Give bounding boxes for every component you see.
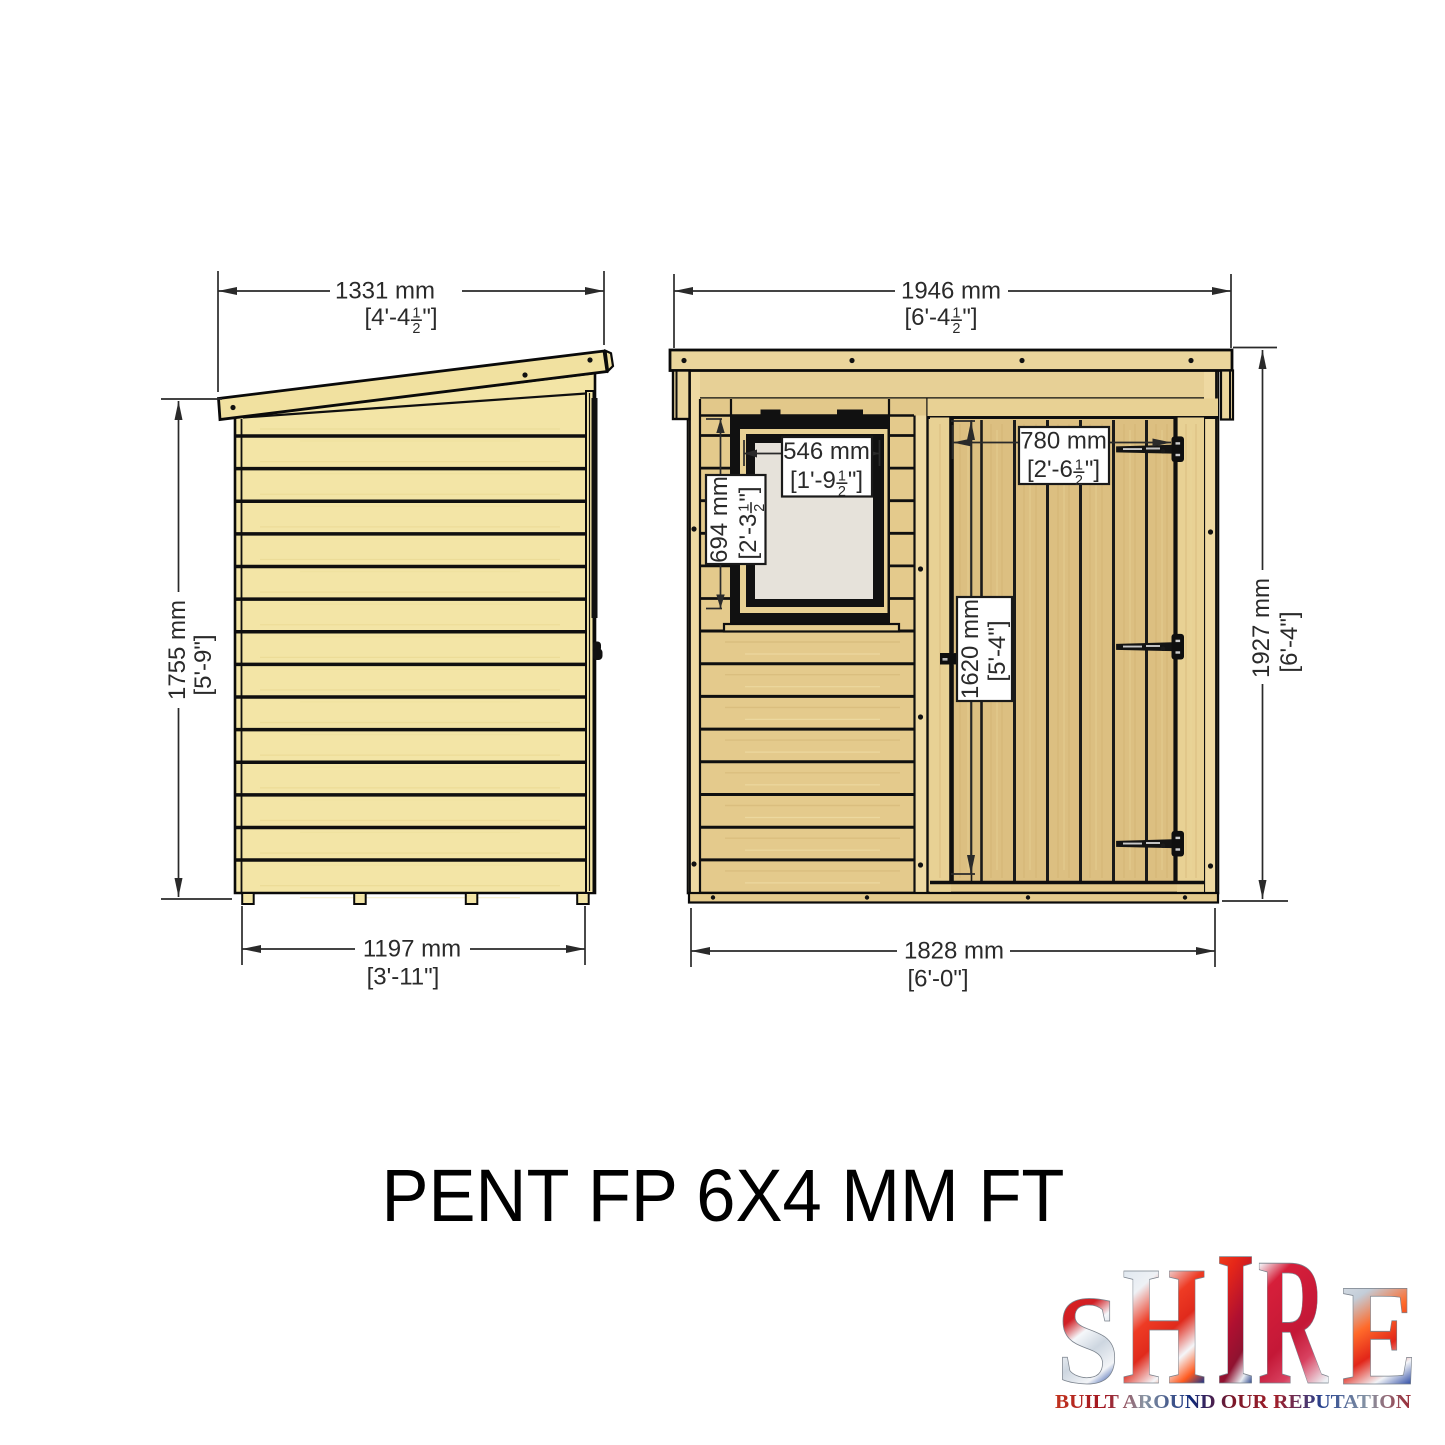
- svg-text:[3'-11"]: [3'-11"]: [367, 964, 440, 991]
- svg-text:1: 1: [737, 504, 753, 512]
- svg-text:"]: "]: [848, 467, 863, 494]
- svg-text:780 mm: 780 mm: [1020, 428, 1107, 455]
- svg-text:PENT FP 6X4 MM FT: PENT FP 6X4 MM FT: [382, 1154, 1065, 1237]
- svg-text:"]: "]: [1085, 456, 1100, 483]
- svg-text:2: 2: [412, 321, 420, 337]
- svg-text:S: S: [1057, 1271, 1120, 1411]
- svg-text:1197 mm: 1197 mm: [363, 936, 461, 963]
- svg-text:1828 mm: 1828 mm: [904, 938, 1004, 965]
- svg-text:[2'-6: [2'-6: [1027, 456, 1073, 483]
- svg-text:546 mm: 546 mm: [783, 438, 870, 465]
- svg-text:1: 1: [412, 306, 420, 322]
- svg-text:1755 mm: 1755 mm: [164, 600, 191, 700]
- svg-text:[5'-4"]: [5'-4"]: [984, 620, 1011, 681]
- svg-text:[6'-4: [6'-4: [904, 304, 950, 331]
- svg-text:1: 1: [952, 306, 960, 322]
- svg-text:"]: "]: [962, 304, 977, 331]
- svg-text:BUILT AROUND OUR REPUTATION: BUILT AROUND OUR REPUTATION: [1055, 1392, 1411, 1413]
- svg-text:[4'-4: [4'-4: [364, 304, 410, 331]
- svg-text:"]: "]: [422, 304, 437, 331]
- svg-text:2: 2: [952, 321, 960, 337]
- svg-text:1331 mm: 1331 mm: [335, 278, 435, 305]
- svg-text:[5'-9"]: [5'-9"]: [190, 634, 217, 695]
- svg-text:1: 1: [838, 469, 846, 485]
- svg-text:694 mm: 694 mm: [706, 476, 733, 563]
- svg-text:"]: "]: [735, 486, 762, 501]
- svg-text:1620 mm: 1620 mm: [957, 599, 984, 699]
- svg-text:1: 1: [1075, 458, 1083, 474]
- svg-text:2: 2: [752, 504, 768, 512]
- svg-text:[6'-4"]: [6'-4"]: [1276, 611, 1303, 672]
- svg-text:1946 mm: 1946 mm: [901, 278, 1001, 305]
- svg-text:[6'-0"]: [6'-0"]: [907, 966, 968, 993]
- svg-text:[2'-3: [2'-3: [735, 514, 762, 560]
- svg-text:1927 mm: 1927 mm: [1248, 578, 1275, 678]
- svg-text:2: 2: [838, 484, 846, 500]
- svg-text:[1'-9: [1'-9: [790, 467, 836, 494]
- svg-text:2: 2: [1075, 473, 1083, 489]
